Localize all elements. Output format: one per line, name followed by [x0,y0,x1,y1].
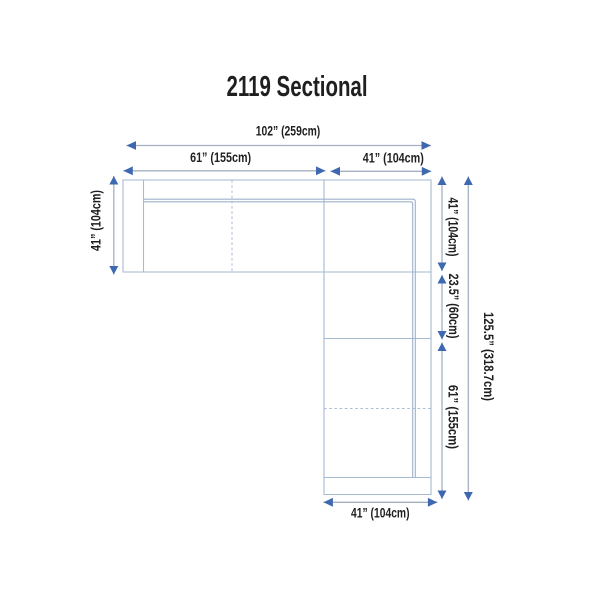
svg-text:41” (104cm): 41” (104cm) [445,198,461,257]
svg-text:61” (155cm): 61” (155cm) [445,385,461,449]
svg-text:41” (104cm): 41” (104cm) [363,150,424,166]
svg-text:2119 Sectional: 2119 Sectional [227,71,368,103]
svg-text:61” (155cm): 61” (155cm) [190,149,251,165]
svg-text:23.5” (60cm): 23.5” (60cm) [446,274,462,339]
svg-text:102” (259cm): 102” (259cm) [256,123,321,139]
svg-text:41” (104cm): 41” (104cm) [351,505,410,521]
svg-text:41” (104cm): 41” (104cm) [88,190,104,251]
svg-text:125.5” (318.7cm): 125.5” (318.7cm) [481,312,497,401]
